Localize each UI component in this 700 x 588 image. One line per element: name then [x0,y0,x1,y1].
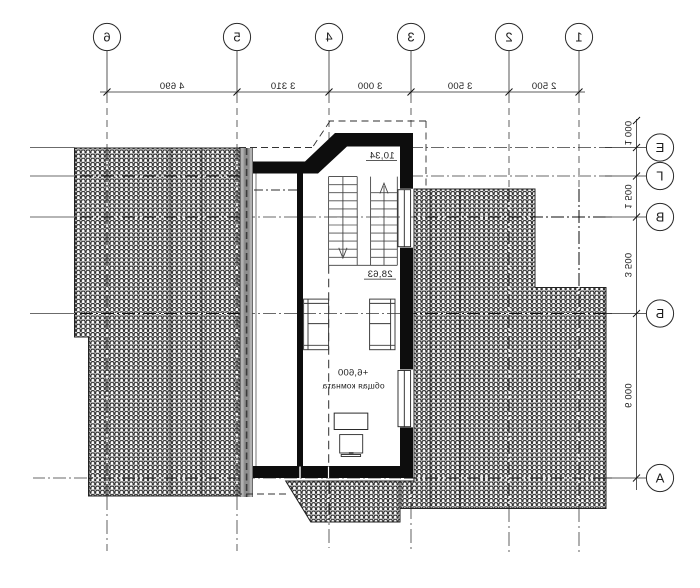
svg-text:3: 3 [407,30,414,45]
svg-text:6 000: 6 000 [622,383,633,408]
svg-text:6: 6 [103,30,110,45]
svg-text:Е: Е [655,140,664,155]
svg-text:4 690: 4 690 [160,81,185,92]
svg-text:3 500: 3 500 [622,253,633,278]
svg-text:1 000: 1 000 [622,121,633,146]
svg-text:общая комната: общая комната [322,381,384,391]
svg-text:3 000: 3 000 [358,81,383,92]
svg-text:3 500: 3 500 [448,81,473,92]
svg-text:А: А [655,471,664,486]
svg-text:2 500: 2 500 [532,81,557,92]
svg-text:Б: Б [656,306,665,321]
svg-text:3 310: 3 310 [271,81,296,92]
svg-text:5: 5 [233,30,240,45]
svg-text:В: В [656,210,665,225]
svg-text:2: 2 [505,30,512,45]
svg-text:+6,600: +6,600 [338,368,369,379]
svg-text:4: 4 [325,30,332,45]
svg-text:1: 1 [575,30,582,45]
svg-text:10,34: 10,34 [369,151,394,162]
svg-text:28,63: 28,63 [367,269,392,280]
svg-text:1 500: 1 500 [622,184,633,209]
svg-text:Г: Г [656,169,663,184]
